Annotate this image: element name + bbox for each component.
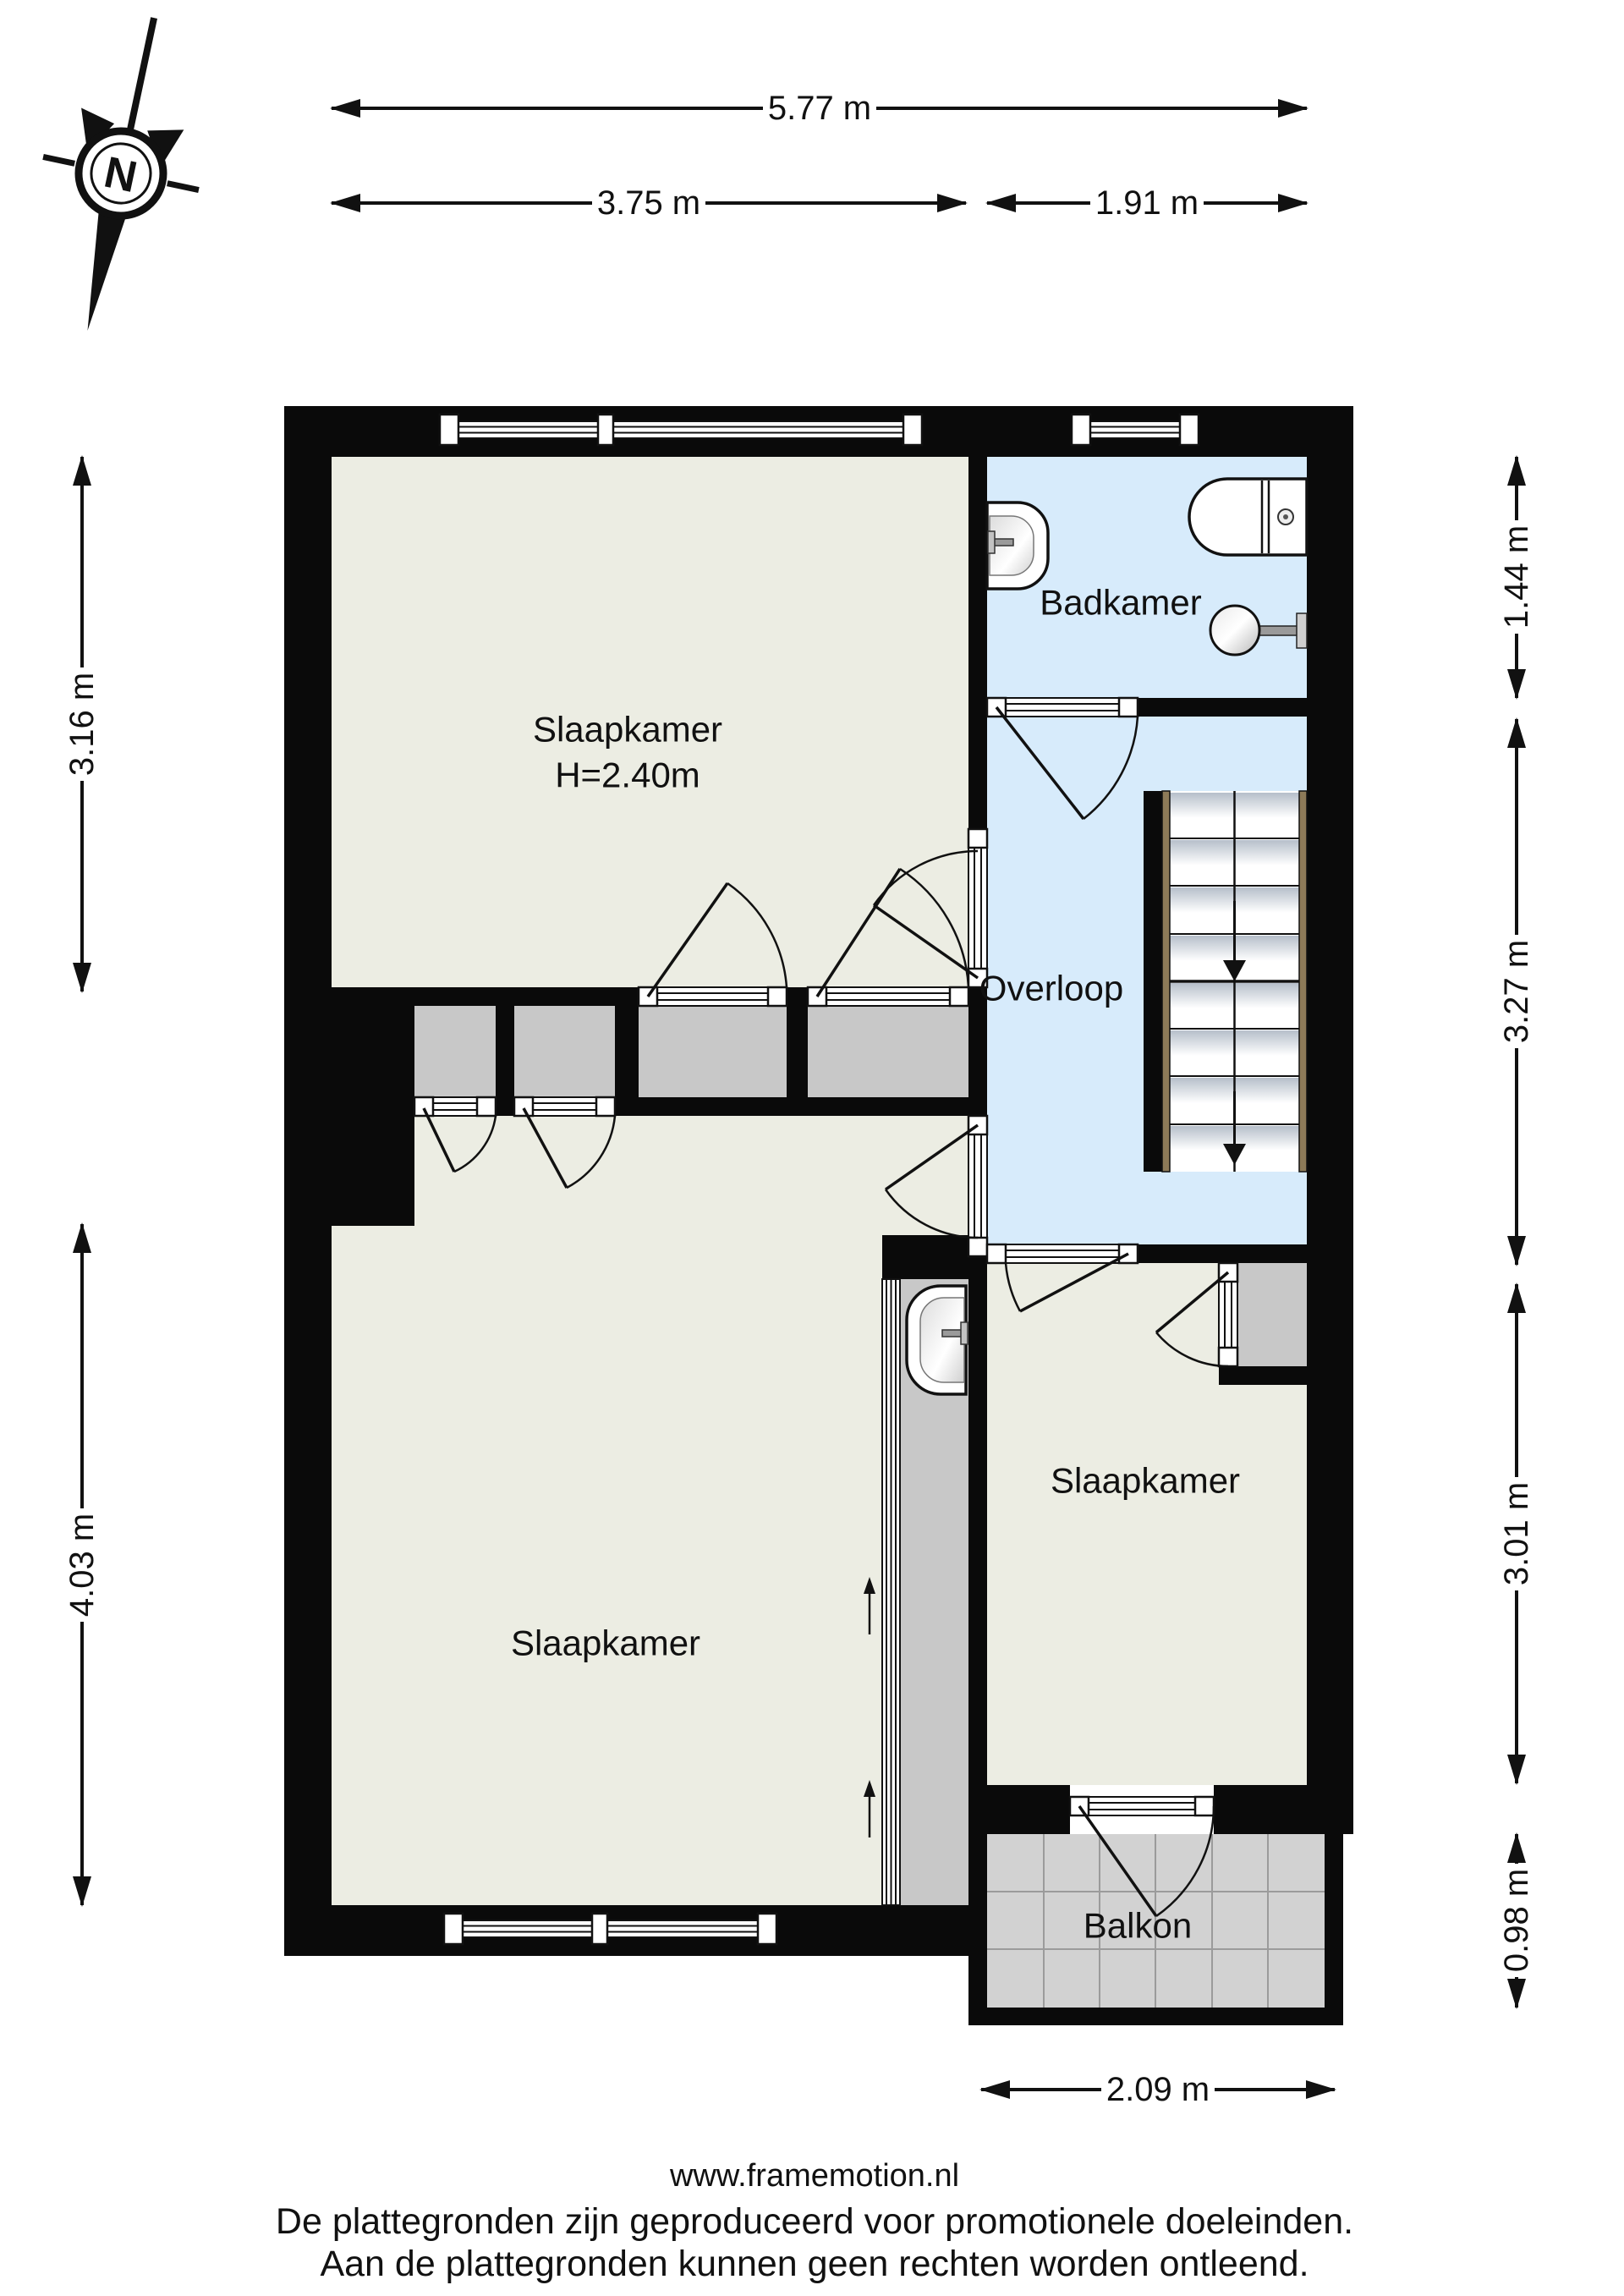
dim-right-landing: 3.27 m [1498, 940, 1535, 1043]
label-bedroom-right: Slaapkamer [1051, 1461, 1240, 1501]
dim-right-bedroom: 3.01 m [1498, 1482, 1535, 1585]
label-landing: Overloop [979, 969, 1123, 1008]
closet-2-floor [514, 1006, 615, 1097]
wall-closet-right-bottom [1219, 1366, 1307, 1385]
footer-disclaimer-2: Aan de plattegronden kunnen geen rechten… [320, 2244, 1309, 2284]
footer-disclaimer-1: De plattegronden zijn geproduceerd voor … [276, 2201, 1353, 2242]
dim-top-total: 5.77 m [768, 90, 871, 127]
wall-closet-bottom [639, 1097, 968, 1116]
room-floors [332, 457, 1325, 2008]
footer-website: www.framemotion.nl [669, 2158, 959, 2194]
closet-4-floor [808, 1006, 968, 1097]
dim-bottom-balcony: 2.09 m [1106, 2071, 1210, 2108]
dim-right-bathroom: 1.44 m [1498, 525, 1535, 629]
toilet-icon [1189, 479, 1307, 555]
dim-right-balcony: 0.98 m [1498, 1869, 1535, 1972]
label-bedroom-top: Slaapkamer [533, 710, 722, 750]
wall-closet-divider-3 [787, 987, 808, 1116]
stairs-left-wall [1144, 791, 1162, 1172]
label-bedroom-left: Slaapkamer [511, 1623, 700, 1663]
dim-top-right: 1.91 m [1095, 184, 1199, 222]
wall-right [1307, 406, 1353, 1834]
dim-top-left: 3.75 m [597, 184, 700, 222]
label-bedroom-top-ceiling: H=2.40m [555, 755, 700, 795]
wall-mass-left [284, 987, 414, 1226]
bedroom-left-floor [332, 1116, 882, 1905]
bedroom-left-floor-strip [882, 1116, 968, 1235]
wall-closet-top [414, 987, 639, 1006]
wall-niche-cap [882, 1235, 968, 1279]
staircase [1144, 791, 1307, 1172]
niche-washbasin-icon [907, 1286, 968, 1394]
closet-3-floor [639, 1006, 787, 1097]
floorplan-canvas: 5.77 m 3.75 m 1.91 m 3.16 m 4.03 m 1.44 … [0, 0, 1624, 2296]
stair-stringer-left [1162, 791, 1170, 1172]
dim-left-upper: 3.16 m [63, 673, 101, 776]
wall-closet-divider-2 [615, 987, 639, 1116]
closet-right-floor [1237, 1263, 1307, 1366]
label-bathroom: Badkamer [1040, 583, 1201, 623]
wall-closet-divider-1 [496, 1006, 514, 1116]
wall-balcony-right [1325, 1834, 1343, 2025]
bathroom-sink-icon [987, 503, 1048, 589]
dim-left-lower: 4.03 m [63, 1513, 101, 1617]
stair-stringer-right [1299, 791, 1307, 1172]
closet-1-floor [414, 1006, 496, 1097]
wall-balcony-bottom [968, 2008, 1343, 2025]
compass-rose-icon: N [10, 2, 232, 348]
footer: www.framemotion.nl De plattegronden zijn… [276, 2158, 1353, 2284]
label-balcony: Balkon [1084, 1906, 1192, 1946]
sliding-door-niche [882, 1279, 900, 1905]
